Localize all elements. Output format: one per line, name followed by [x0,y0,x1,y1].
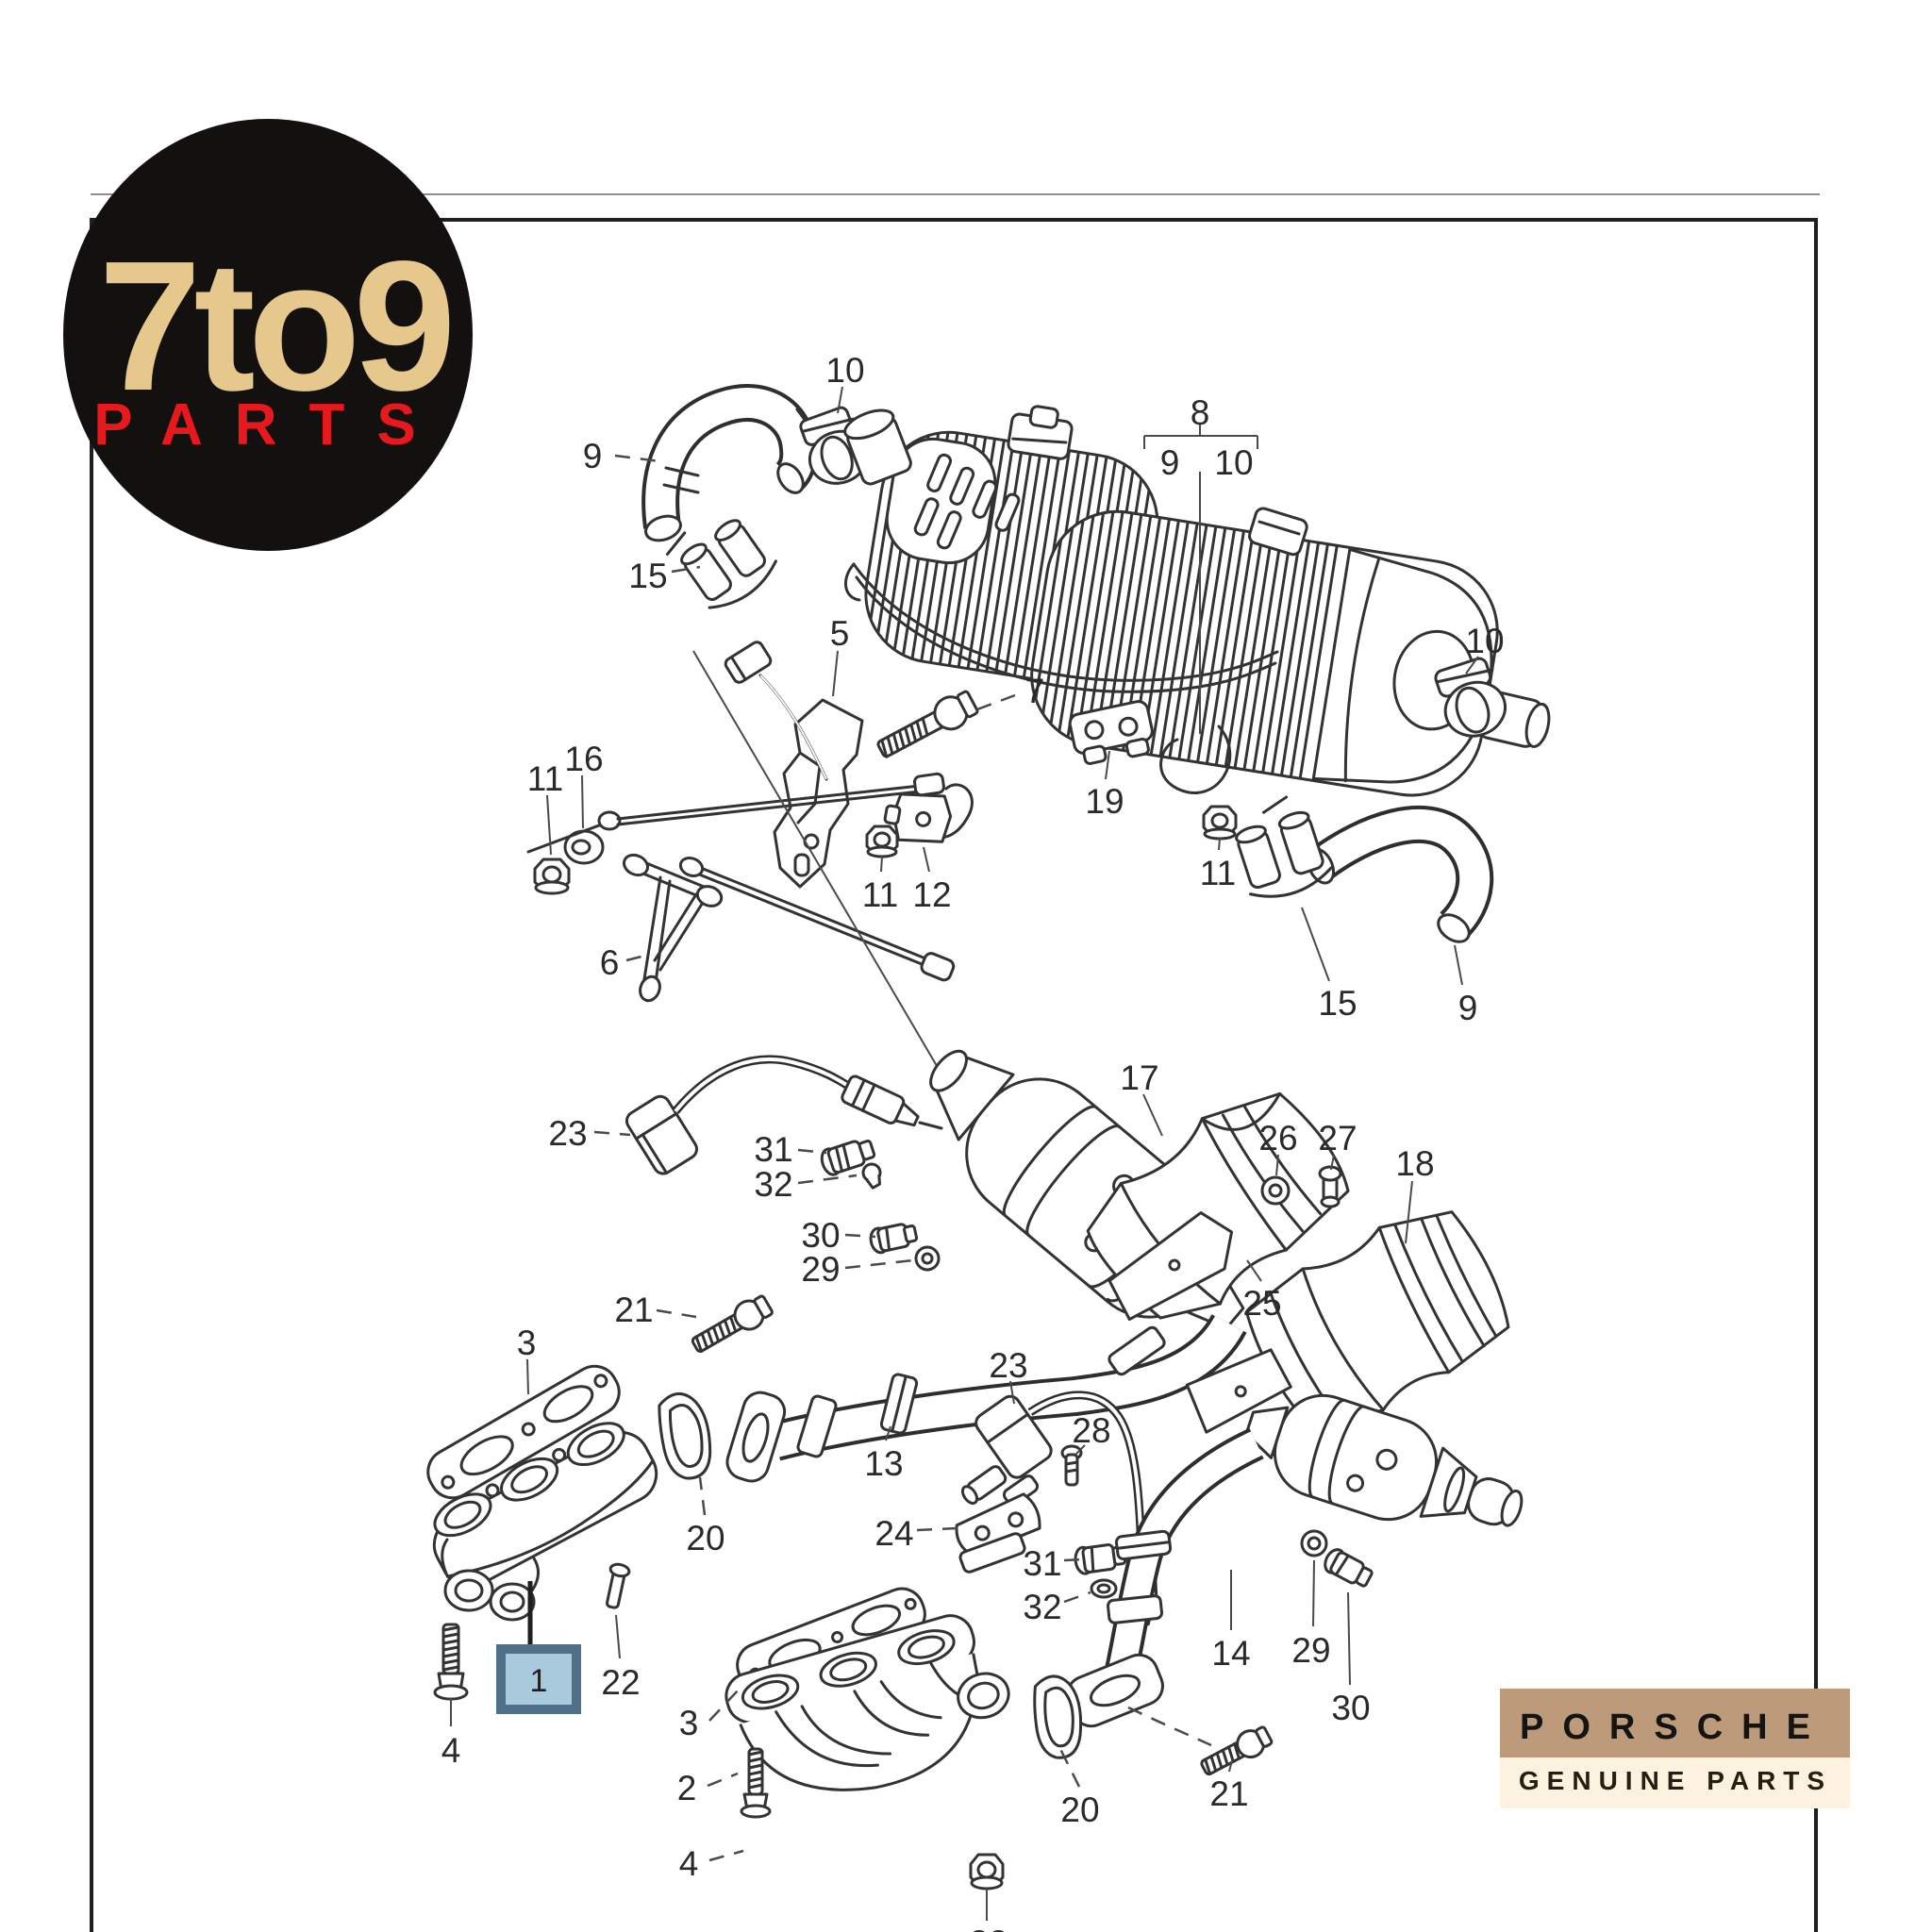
svg-text:3: 3 [517,1324,537,1362]
svg-text:27: 27 [1318,1119,1357,1158]
svg-text:19: 19 [1085,782,1124,821]
svg-text:22: 22 [969,1924,1008,1932]
svg-text:15: 15 [628,557,667,595]
svg-text:1: 1 [530,1663,548,1699]
svg-text:20: 20 [1060,1790,1099,1829]
svg-text:3: 3 [679,1704,699,1742]
svg-text:31: 31 [1023,1544,1061,1583]
svg-text:15: 15 [1318,984,1357,1023]
svg-text:21: 21 [614,1291,653,1329]
svg-text:14: 14 [1211,1634,1250,1673]
svg-text:31: 31 [754,1130,792,1169]
svg-text:5: 5 [830,614,850,653]
svg-text:8: 8 [1191,393,1210,432]
svg-text:9: 9 [1458,989,1478,1027]
svg-text:16: 16 [564,740,603,778]
svg-text:20: 20 [686,1519,724,1557]
svg-text:30: 30 [1331,1689,1370,1727]
svg-text:9: 9 [583,437,603,475]
svg-text:28: 28 [1072,1411,1110,1450]
svg-text:10: 10 [1465,622,1504,660]
svg-text:23: 23 [989,1346,1027,1385]
svg-text:6: 6 [600,943,620,982]
svg-text:10: 10 [1214,443,1253,482]
svg-text:2: 2 [677,1769,697,1807]
svg-text:11: 11 [862,875,898,914]
svg-text:10: 10 [825,351,864,390]
svg-text:25: 25 [1242,1284,1281,1323]
svg-text:18: 18 [1395,1144,1434,1183]
svg-text:26: 26 [1258,1119,1297,1158]
svg-text:17: 17 [1120,1058,1158,1097]
svg-text:11: 11 [1200,854,1236,892]
svg-text:12: 12 [912,875,951,914]
svg-text:32: 32 [754,1165,792,1204]
svg-text:22: 22 [601,1663,640,1702]
svg-text:4: 4 [679,1844,699,1883]
svg-text:29: 29 [801,1250,840,1289]
svg-text:24: 24 [874,1514,913,1553]
svg-text:PARTS: PARTS [93,392,448,458]
svg-text:4: 4 [441,1731,461,1770]
svg-text:30: 30 [801,1216,840,1255]
svg-text:11: 11 [527,759,563,798]
svg-text:7: 7 [1025,672,1045,710]
svg-text:23: 23 [548,1114,587,1153]
svg-text:13: 13 [864,1444,903,1483]
svg-text:21: 21 [1209,1774,1248,1813]
svg-text:GENUINE PARTS: GENUINE PARTS [1519,1766,1832,1795]
svg-text:32: 32 [1023,1588,1061,1626]
svg-text:29: 29 [1291,1631,1330,1670]
svg-text:9: 9 [1160,443,1180,482]
svg-text:PORSCHE: PORSCHE [1520,1707,1829,1747]
